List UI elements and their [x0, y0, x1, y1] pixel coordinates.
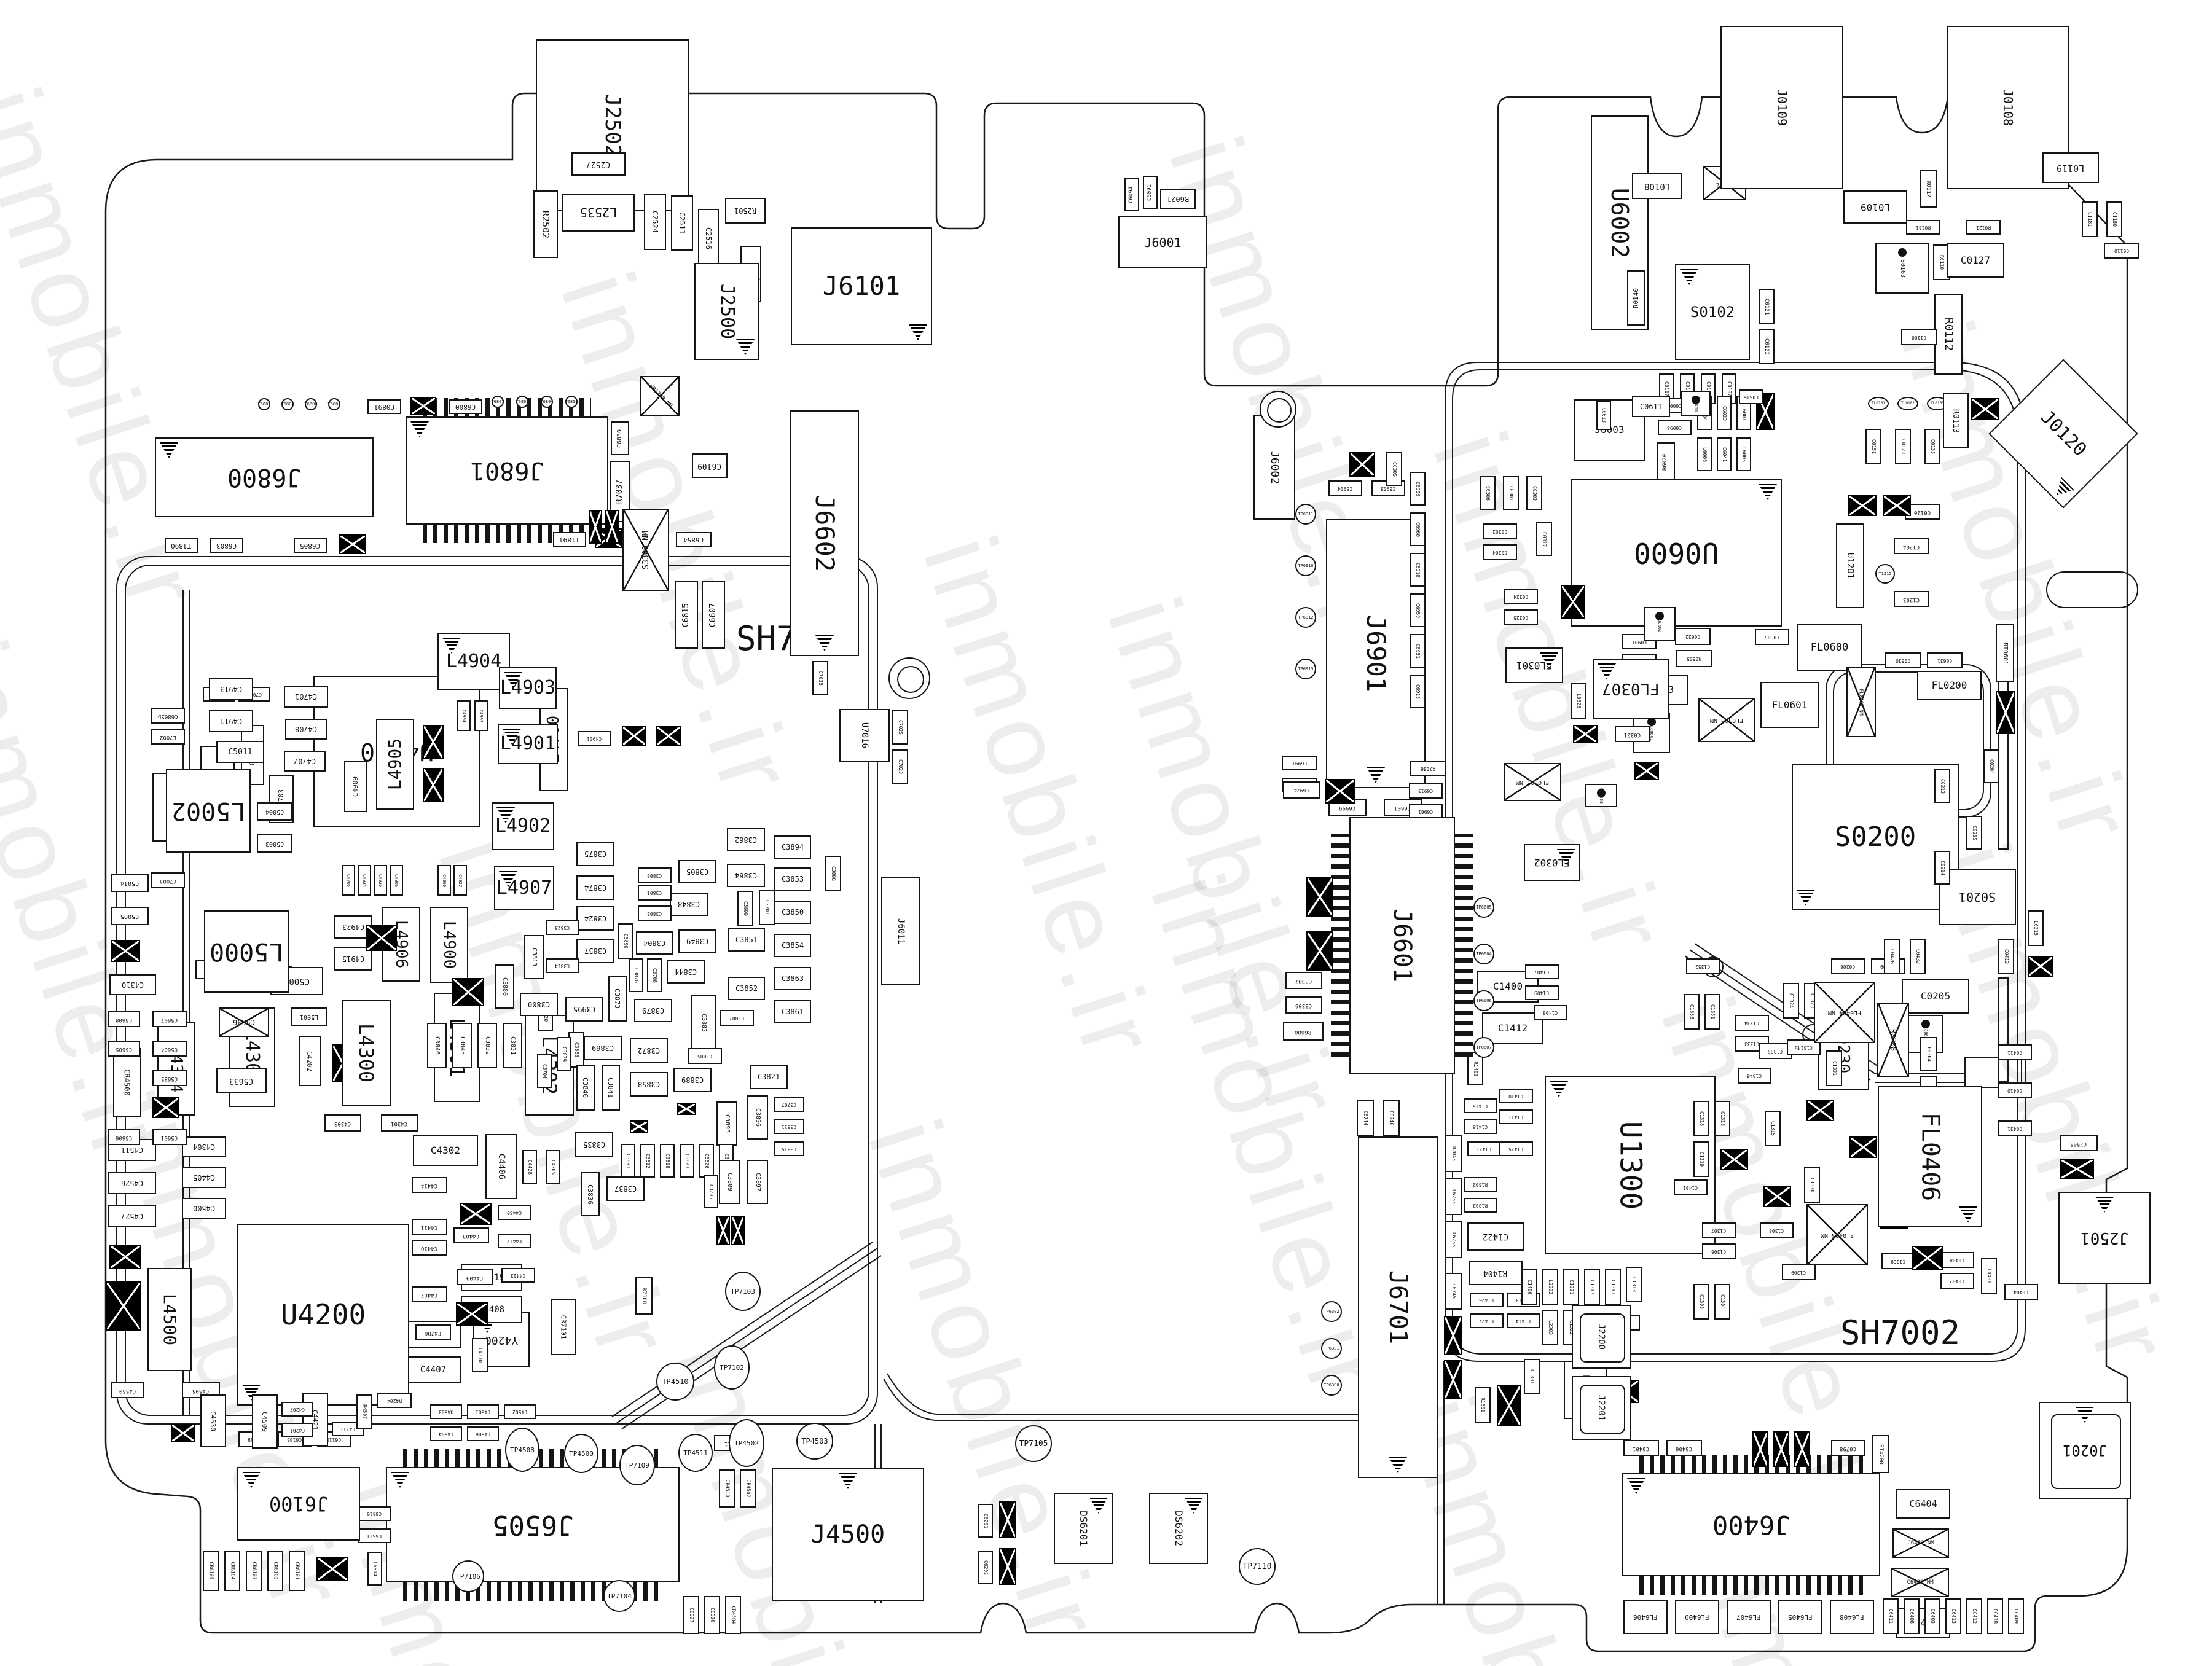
c1180: C1180	[2106, 201, 2122, 237]
c6403: C6403	[1924, 1598, 1940, 1634]
c4430: C4430	[498, 1205, 531, 1220]
nm-mark	[423, 768, 444, 802]
c3829: C3829	[557, 1037, 571, 1071]
fl6409: FL6409	[1675, 1600, 1719, 1634]
c3306: C3306	[1285, 996, 1322, 1014]
nm-mark	[630, 1120, 648, 1133]
c3821: C3821	[750, 1065, 788, 1089]
c6507: C6507	[683, 1596, 699, 1634]
c0404: C0404	[2004, 1284, 2038, 1300]
c3889: C3889	[673, 1068, 712, 1092]
tp4500: TP4500	[564, 1434, 598, 1473]
nm-mark	[656, 726, 681, 746]
j2502: J2502	[536, 39, 689, 211]
nm-mark	[605, 510, 619, 544]
c6746: C6746	[1382, 1100, 1400, 1136]
c6756: C6756	[1445, 1221, 1462, 1258]
nm-mark	[1883, 495, 1911, 516]
screw-hole	[888, 657, 930, 699]
nm-mark	[1773, 1431, 1789, 1467]
nm-mark	[1306, 877, 1333, 917]
c1324: C1324	[1783, 983, 1799, 1019]
c1204: C1204	[1894, 538, 1929, 554]
tp4511: TP4511	[678, 1434, 713, 1472]
c4412: C4412	[498, 1234, 531, 1248]
nm-mark	[1848, 495, 1877, 516]
c1346: C1346	[1738, 1068, 1771, 1084]
c4402: C4402	[412, 1286, 447, 1302]
fl0602-nm: FL0602 NM	[1846, 667, 1876, 737]
c4707: C4707	[284, 751, 326, 772]
t6801: T6801	[328, 398, 340, 410]
c4202: C4202	[299, 1036, 321, 1086]
c3846: C3846	[427, 1023, 447, 1068]
c7035: C7035	[812, 661, 828, 695]
c1316: C1316	[1693, 1101, 1709, 1136]
c3872: C3872	[630, 1038, 668, 1063]
rt4200: RT4200	[1872, 1435, 1889, 1473]
c4705: C4705	[342, 865, 355, 896]
nm-mark	[1497, 1385, 1521, 1426]
c0622: C0622	[1675, 628, 1711, 645]
j2500: J2500	[694, 263, 759, 360]
c6511: C6511	[358, 1528, 391, 1543]
j6001: J6001	[1118, 216, 1207, 268]
orientation-triangle	[1797, 890, 1815, 905]
nm-mark	[1634, 762, 1659, 780]
c3831: C3831	[503, 1023, 522, 1068]
t6806: T6806	[565, 396, 578, 408]
tp6910: TP6910	[1295, 555, 1316, 576]
tp4510: TP4510	[656, 1363, 694, 1401]
c6918: C6918	[1410, 553, 1426, 587]
nm-mark	[111, 940, 140, 962]
r0113: R0113	[1943, 393, 1969, 448]
c3823: C3823	[680, 1144, 694, 1178]
c1411: C1411	[1499, 1109, 1533, 1124]
orientation-triangle	[839, 1473, 857, 1489]
c3861: C3861	[774, 1000, 811, 1023]
tp7106: TP7106	[452, 1560, 484, 1592]
c1203: C1203	[1894, 591, 1929, 607]
l0109: L0109	[1843, 190, 1907, 224]
c6305: C6305	[1386, 452, 1402, 486]
c4205: C4205	[546, 1150, 560, 1184]
c6744: C6744	[1357, 1100, 1374, 1136]
c3853: C3853	[774, 867, 811, 891]
c6800: C6800	[449, 399, 482, 414]
c4708: C4708	[285, 719, 327, 740]
c0631: C0631	[1927, 652, 1963, 668]
j2201: J2201	[1572, 1376, 1631, 1440]
fl6408: FL6408	[1830, 1600, 1874, 1634]
s3300-nm: S3300 NM	[622, 509, 669, 591]
c4926: C4926	[374, 865, 387, 896]
c6406: C6406	[1666, 1440, 1702, 1456]
nm-mark	[999, 1548, 1016, 1585]
c3705: C3705	[704, 1175, 718, 1208]
c4502: C4502	[504, 1404, 536, 1419]
l0215: L0215	[2028, 910, 2044, 946]
c0122: C0122	[1759, 329, 1775, 364]
c4911: C4911	[209, 710, 253, 732]
ds6202: DS6202	[1149, 1493, 1208, 1564]
c3876: C3876	[629, 958, 643, 992]
c0407: C0407	[1940, 1273, 1974, 1289]
c4406: C4406	[485, 1134, 517, 1199]
c2565: C2565	[2060, 1135, 2098, 1151]
c4527: C4527	[108, 1205, 156, 1227]
c6402-nm: C6402 NM	[1891, 1568, 1949, 1597]
j6602: J6602	[790, 410, 859, 656]
t6800: T6800	[305, 398, 317, 410]
t1890: T1890	[165, 538, 198, 553]
c3803: C3803	[638, 905, 672, 921]
c1353: C1353	[1684, 994, 1700, 1030]
orientation-triangle	[736, 339, 755, 355]
orientation-triangle	[1550, 1081, 1568, 1097]
j6002: J6002	[1253, 415, 1295, 520]
c3818: C3818	[660, 1144, 675, 1178]
c6404: C6404	[1896, 1489, 1950, 1519]
j6801: J6801	[406, 416, 608, 525]
c4909: C4909	[344, 761, 367, 812]
c1306: C1306	[1702, 1243, 1736, 1259]
c6805: C6805	[294, 538, 327, 553]
c80602: C80602	[1644, 607, 1676, 641]
c6041: C6041	[1717, 437, 1732, 471]
c4411: C4411	[412, 1219, 447, 1235]
r0117: R0117	[1920, 170, 1937, 208]
c4906: C4906	[390, 865, 403, 896]
c3805: C3805	[678, 860, 716, 883]
nm-mark	[1971, 398, 1999, 420]
c4310: C4310	[109, 974, 156, 995]
fl0601: FL0601	[1760, 682, 1819, 728]
c0798: C0798	[1831, 1440, 1865, 1456]
r4503: R4503	[430, 1404, 462, 1419]
c6805b: C6805b	[151, 708, 185, 724]
c1406: C1406	[1521, 1269, 1537, 1305]
c3893: C3893	[716, 1101, 737, 1146]
nm-mark	[1763, 1186, 1791, 1207]
c7023: C7023	[892, 749, 908, 784]
c4201: C4201	[281, 1423, 313, 1437]
c5633: C5633	[216, 1068, 267, 1093]
c3857: C3857	[576, 939, 614, 963]
c1308: C1308	[1760, 1222, 1794, 1238]
c3852: C3852	[728, 977, 765, 1000]
c0127: C0127	[1947, 243, 2004, 278]
c1425: C1425	[1499, 1141, 1533, 1156]
u7016: U7016	[839, 709, 890, 762]
c6991: C6991	[1282, 756, 1317, 770]
tp6302: TP6302	[1321, 1301, 1342, 1322]
nm-mark	[410, 397, 436, 415]
nm-mark	[2028, 956, 2053, 977]
nm-mark	[677, 1103, 696, 1115]
tp6912: TP6912	[1295, 607, 1316, 628]
l2535: L2535	[562, 194, 635, 232]
cr4500: CR4500	[113, 1048, 141, 1117]
nm-mark	[1444, 1360, 1462, 1399]
orientation-triangle	[815, 635, 834, 651]
c6924: C6924	[1283, 781, 1320, 799]
c4927: C4927	[453, 865, 467, 896]
c0613: C0613	[1596, 401, 1611, 430]
orientation-triangle	[1680, 269, 1698, 285]
c3701: C3701	[759, 890, 775, 925]
c6913: C6913	[1409, 783, 1443, 799]
c0630: C0630	[1885, 652, 1921, 668]
c6201: C6201	[978, 1504, 993, 1538]
t1215: T1215	[1875, 564, 1895, 584]
c5608: C5608	[108, 1011, 140, 1027]
nm-mark	[456, 1302, 488, 1326]
c3800: C3800	[520, 993, 558, 1016]
fl0305-nm: FL0305 NM	[1504, 763, 1561, 801]
tp7104: TP7104	[603, 1580, 635, 1612]
j2501: J2501	[2058, 1192, 2151, 1284]
c6951: C6951	[1410, 634, 1426, 668]
j6701: J6701	[1358, 1136, 1438, 1478]
nm-mark	[452, 978, 484, 1006]
f0204: F0204	[1920, 1037, 1937, 1071]
c3854: C3854	[774, 934, 811, 957]
c1369: C1369	[1881, 1253, 1915, 1269]
c4403: C4403	[453, 1227, 489, 1243]
c6915: C6915	[1410, 675, 1426, 708]
c6413: C6413	[1945, 1598, 1961, 1634]
c3806: C3806	[825, 856, 841, 891]
c3811: C3811	[774, 1119, 804, 1134]
c3836: C3836	[581, 1172, 600, 1216]
c1303: C1303	[1693, 1284, 1709, 1320]
c0123: C0123	[1895, 429, 1911, 464]
c4407: C4407	[406, 1356, 461, 1383]
orientation-triangle	[160, 442, 178, 458]
c3851: C3851	[728, 928, 765, 952]
nm-mark	[1561, 585, 1585, 619]
r2501: R2501	[725, 198, 766, 224]
c4414: C4414	[412, 1177, 447, 1193]
j6800: J6800	[155, 437, 374, 517]
cr6104: CR6104	[224, 1551, 240, 1591]
l6006: L6006	[1697, 437, 1712, 471]
nm-mark	[316, 1557, 348, 1581]
c3835: C3835	[575, 1132, 613, 1157]
c1352: C1352	[1686, 958, 1720, 974]
nm-mark	[423, 725, 444, 759]
c0213: C0213	[1934, 769, 1950, 803]
tp7109: TP7109	[619, 1445, 655, 1485]
l5002: L5002	[166, 769, 251, 853]
c3844: C3844	[667, 960, 705, 984]
c0303: C0303	[1526, 476, 1542, 510]
t6807: T6807	[492, 396, 504, 408]
c7025: C7025	[892, 710, 908, 745]
l4905: L4905	[376, 719, 414, 810]
c80600: C80600	[1681, 391, 1711, 416]
c3704: C3704	[537, 1054, 552, 1088]
c6411: C6411	[1883, 1598, 1899, 1634]
c1301: C1301	[1524, 1359, 1540, 1394]
fl6407: FL6407	[1727, 1600, 1771, 1634]
c4413: C4413	[501, 1268, 535, 1283]
u1201: U1201	[1836, 523, 1864, 608]
c0304: C0304	[1483, 544, 1517, 560]
sb1300-nm: SB1300 NM	[640, 376, 680, 416]
nm-mark	[1912, 1246, 1943, 1270]
c2516: C2516	[698, 209, 719, 268]
nm-mark	[460, 1203, 492, 1225]
c6960: C6960	[1410, 512, 1426, 546]
c5005: C5005	[111, 907, 149, 925]
cr4502: CR4502	[740, 1469, 756, 1508]
orientation-triangle	[1367, 767, 1385, 783]
r4204: R4204	[377, 1393, 412, 1408]
c0306: C0306	[1480, 476, 1496, 510]
c6803: C6803	[210, 538, 243, 553]
fl0307: FL0307	[1593, 659, 1669, 719]
c4304: C4304	[182, 1136, 226, 1157]
j0109: J0109	[1720, 26, 1843, 189]
c1331: C1331	[1826, 1050, 1842, 1086]
tl0102: TL0102	[1897, 397, 1918, 410]
orientation-triangle	[1598, 663, 1616, 679]
orientation-triangle	[1389, 1457, 1407, 1473]
c4913: C4913	[209, 678, 253, 700]
c6422-nm: C6422 NM	[1892, 1528, 1949, 1558]
c4924: C4924	[358, 865, 371, 896]
orientation-triangle	[391, 1472, 409, 1488]
c0133: C0133	[1924, 429, 1940, 464]
orientation-triangle	[909, 324, 927, 340]
nm-mark	[339, 534, 366, 554]
nm-mark	[2060, 1159, 2094, 1179]
l4300: L4300	[342, 1000, 391, 1106]
c5004: C5004	[257, 802, 292, 821]
c6830: C6830	[611, 421, 629, 455]
tp6301: TP6301	[1321, 1338, 1342, 1359]
c1317: C1317	[1584, 1269, 1600, 1305]
nm-mark	[1794, 1431, 1810, 1467]
c3801: C3801	[638, 885, 672, 901]
c4904: C4904	[457, 700, 471, 731]
c3832: C3832	[477, 1023, 497, 1068]
l2302: L2302	[1542, 1269, 1558, 1305]
c3809: C3809	[719, 1160, 740, 1204]
c4506: C4506	[467, 1426, 499, 1441]
nm-mark	[109, 1245, 141, 1269]
nm-mark	[152, 1097, 179, 1118]
c5014: C5014	[111, 874, 149, 892]
c0431: C0431	[1998, 1120, 2032, 1136]
cr7101: CR7101	[551, 1299, 576, 1355]
c0611: C0611	[1632, 396, 1670, 417]
c4550: C4550	[111, 1382, 144, 1398]
c3804: C3804	[636, 931, 673, 955]
r6600: R6600	[1283, 1022, 1324, 1041]
u0600: U0600	[1571, 479, 1782, 627]
r0112: R0112	[1934, 294, 1963, 375]
nm-mark	[1444, 1316, 1462, 1355]
orientation-triangle	[410, 421, 429, 437]
orientation-triangle	[2050, 477, 2075, 502]
tp7110: TP7110	[1239, 1548, 1276, 1585]
c4428: C4428	[522, 1150, 537, 1184]
c6959: C6959	[1410, 593, 1426, 627]
c4409: C4409	[457, 1269, 493, 1285]
c3995: C3995	[565, 997, 603, 1022]
c4509: C4509	[252, 1394, 278, 1449]
c1422: C1422	[1467, 1222, 1524, 1251]
r1404: R1404	[1469, 1261, 1523, 1285]
j4500: J4500	[772, 1468, 924, 1601]
r7036: R7036	[1410, 761, 1446, 776]
tl0101: TL0101	[1868, 397, 1889, 410]
c4900: C4900	[437, 865, 451, 896]
c1319: C1319	[1693, 1141, 1709, 1177]
c4504: C4504	[430, 1426, 462, 1441]
c0204: C0204	[1983, 749, 1999, 783]
c6755: C6755	[1445, 1178, 1462, 1215]
tp6607: TP6607	[1473, 1037, 1494, 1058]
r7100: R7100	[635, 1277, 653, 1315]
c1313: C1313	[1626, 1267, 1642, 1302]
t1891: T1891	[553, 532, 586, 547]
s0103: S0103	[1875, 243, 1929, 294]
screw-hole	[1260, 391, 1296, 428]
part	[2046, 571, 2138, 608]
c3885: C3885	[688, 1048, 722, 1064]
l5001: L5001	[291, 1007, 327, 1026]
c3824: C3824	[576, 906, 614, 931]
r0140: R0140	[1627, 270, 1645, 326]
c6607: C6607	[702, 581, 725, 649]
c0408: C0408	[1940, 1252, 1974, 1268]
c4530: C4530	[200, 1394, 226, 1447]
c6109: C6109	[692, 453, 728, 478]
c5011: C5011	[216, 741, 264, 763]
c5635: C5635	[152, 1070, 187, 1086]
c5607: C5607	[152, 1011, 187, 1027]
c1100: C1100	[1901, 329, 1937, 345]
c0301: C0301	[1503, 476, 1519, 510]
nm-mark	[1720, 1149, 1748, 1170]
orientation-triangle	[1185, 1498, 1203, 1514]
c4701: C4701	[284, 686, 328, 708]
fl0301: FL0301	[1505, 647, 1563, 683]
c3707: C3707	[774, 1097, 804, 1112]
c1427: C1427	[1470, 1313, 1504, 1328]
c4405: C4405	[182, 1167, 226, 1188]
r6020: R6020	[1657, 442, 1675, 482]
r0121: R0121	[1966, 220, 2001, 235]
c0205: C0205	[1902, 979, 1969, 1014]
r7045: R7045	[1445, 1135, 1462, 1172]
c3869: C3869	[584, 1036, 622, 1060]
u4200: U4200	[237, 1224, 409, 1406]
l5000: L5000	[204, 910, 289, 993]
c1414: C1414	[1507, 1313, 1540, 1328]
c0412: C0412	[1998, 939, 2014, 974]
l7002: L7002	[151, 729, 185, 745]
c6745: C6745	[1445, 1273, 1462, 1310]
c3708: C3708	[647, 958, 662, 992]
r0208: R0208	[1877, 1003, 1909, 1077]
r0131: R0131	[1906, 220, 1940, 235]
